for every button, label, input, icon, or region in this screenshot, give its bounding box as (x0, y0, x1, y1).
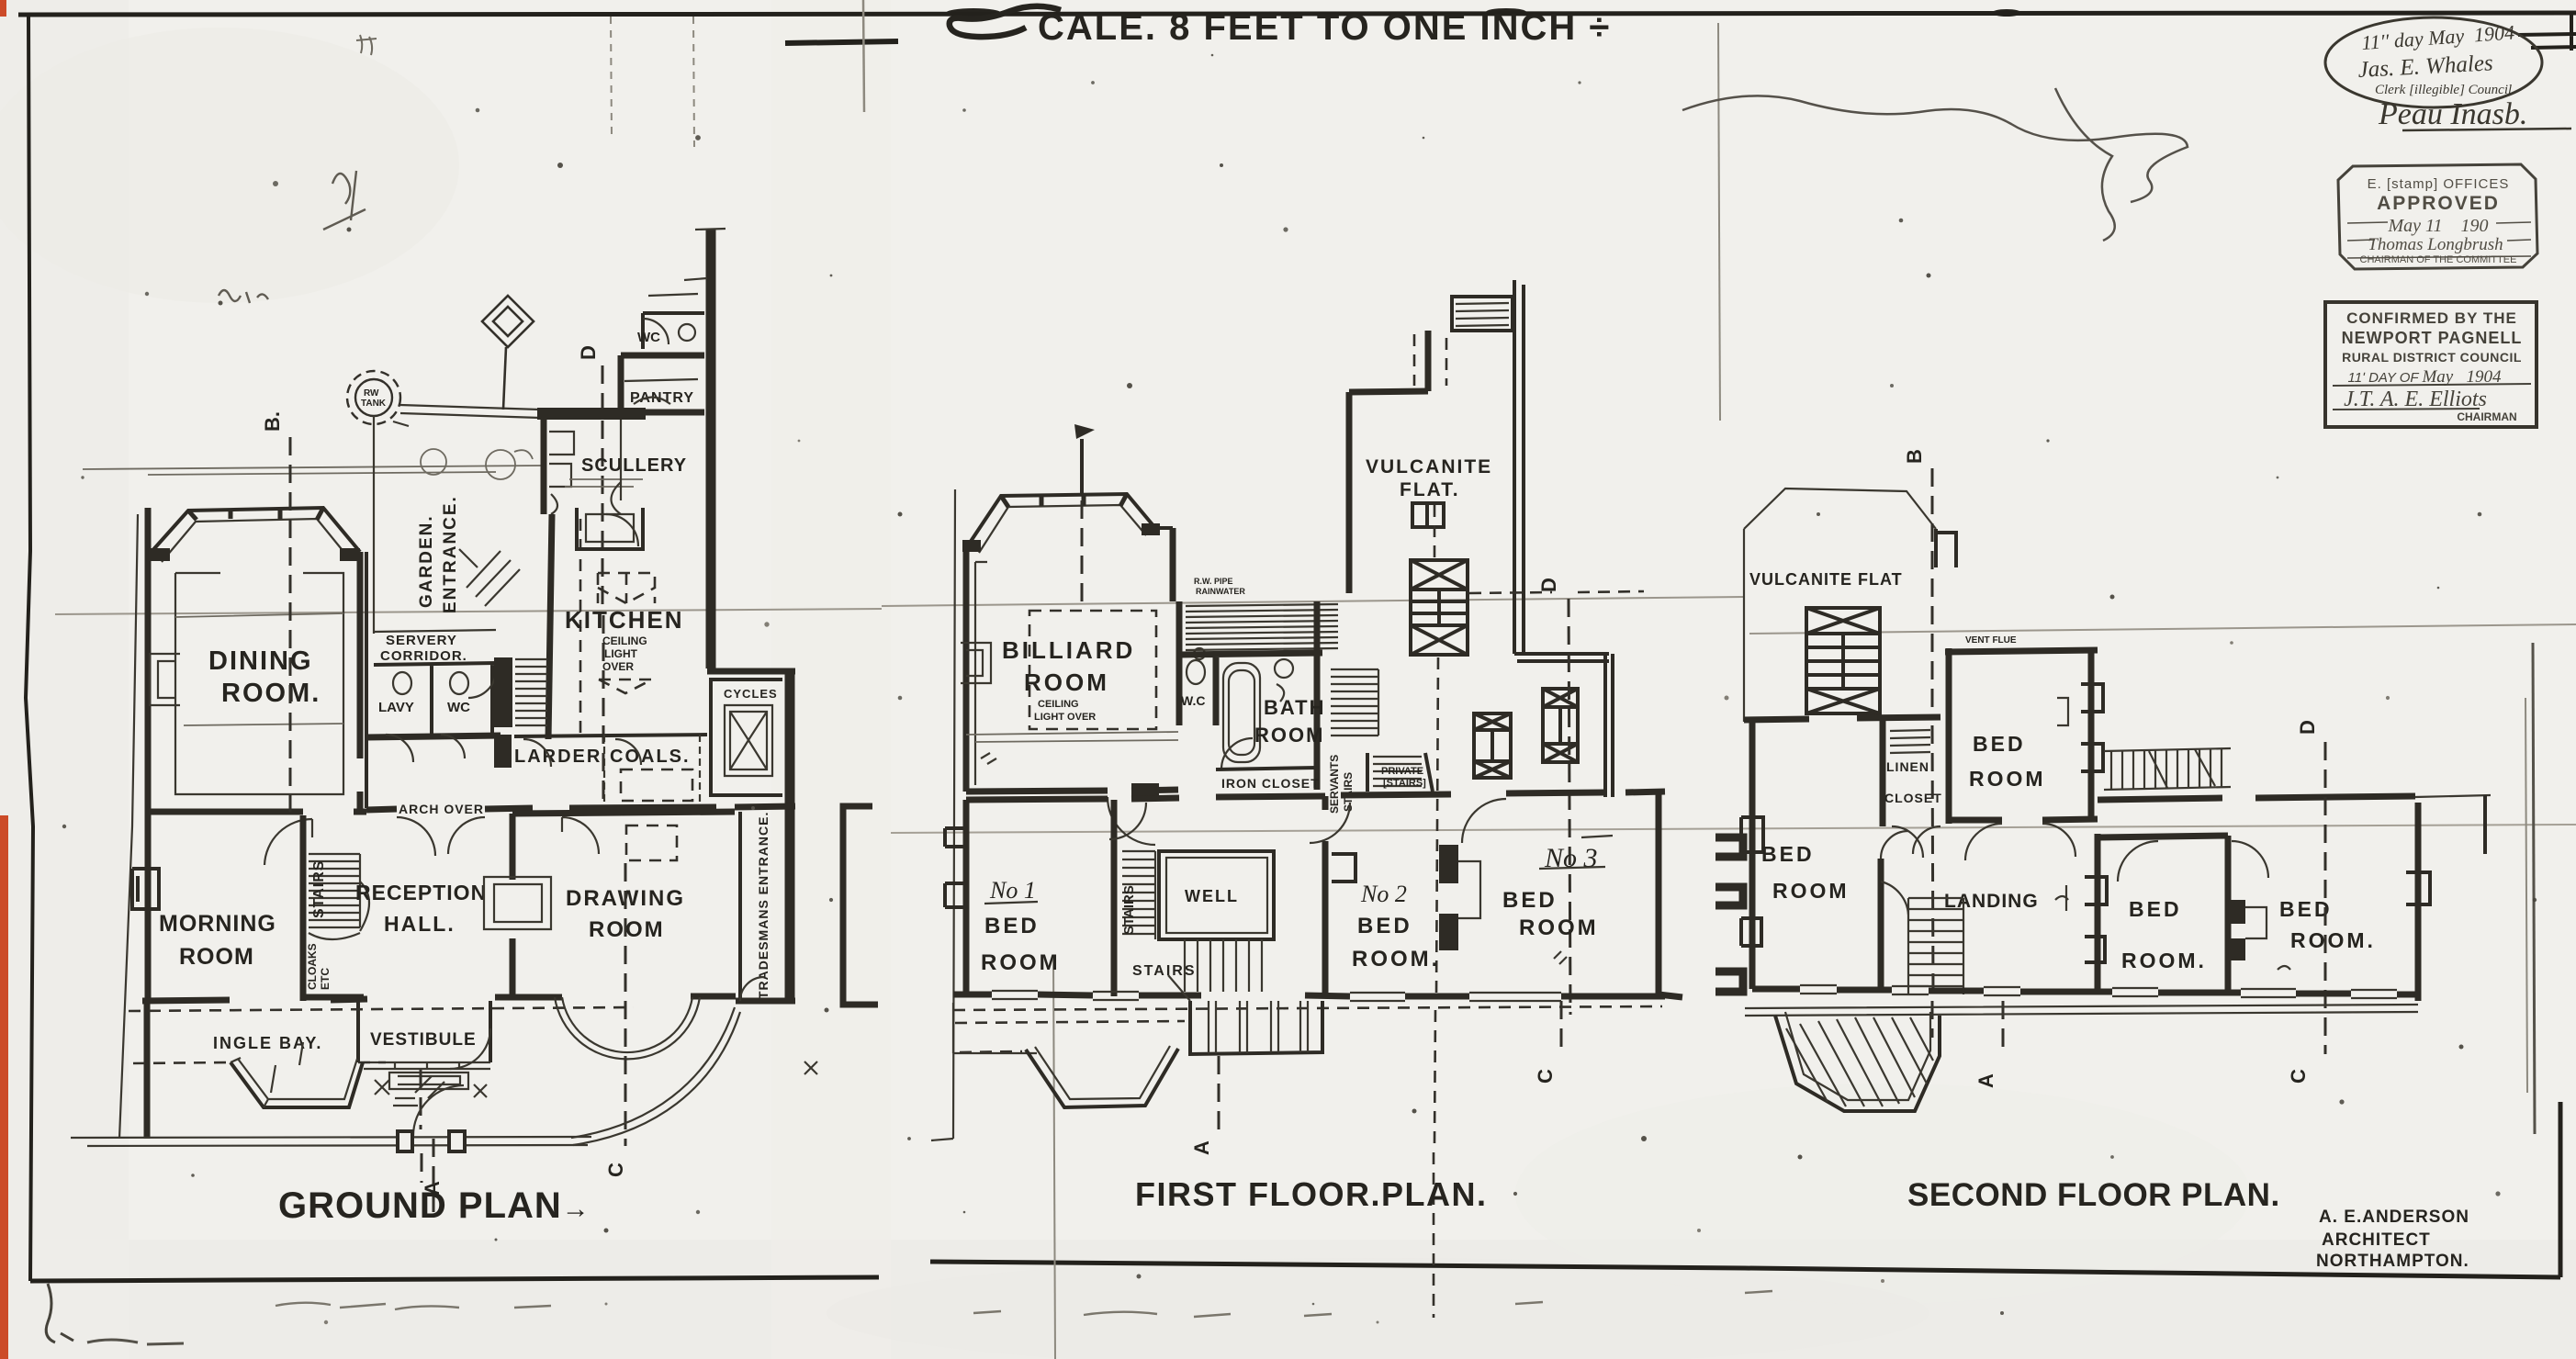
svg-text:RECEPTION: RECEPTION (355, 881, 487, 904)
svg-text:BED: BED (984, 914, 1040, 938)
svg-text:BILLIARD: BILLIARD (1002, 636, 1135, 664)
svg-text:A. E.ANDERSON: A. E.ANDERSON (2319, 1207, 2469, 1227)
svg-text:COALS.: COALS. (610, 747, 691, 767)
svg-text:PANTRY: PANTRY (630, 390, 694, 406)
svg-text:KITCHEN: KITCHEN (565, 606, 684, 634)
svg-text:LAVY: LAVY (378, 700, 414, 715)
svg-text:LIGHT OVER: LIGHT OVER (1034, 712, 1096, 723)
svg-text:ROOM.: ROOM. (2290, 928, 2376, 952)
svg-text:B.: B. (261, 411, 284, 432)
svg-text:CYCLES: CYCLES (724, 687, 778, 701)
svg-text:ROOM.: ROOM. (2121, 949, 2207, 972)
svg-text:BED: BED (1502, 888, 1558, 913)
svg-text:CLOAKS: CLOAKS (306, 943, 319, 990)
svg-text:BED: BED (1357, 914, 1412, 938)
svg-text:PRIVATE: PRIVATE (1381, 766, 1423, 777)
svg-text:Thomas Longbrush: Thomas Longbrush (2368, 235, 2503, 254)
svg-text:WC: WC (447, 700, 470, 715)
svg-text:VULCANITE: VULCANITE (1366, 456, 1492, 477)
svg-text:D: D (2296, 720, 2319, 735)
svg-text:CEILING: CEILING (602, 635, 647, 647)
svg-text:VULCANITE FLAT: VULCANITE FLAT (1749, 570, 1903, 589)
svg-text:SCULLERY: SCULLERY (581, 455, 687, 476)
svg-text:ETC: ETC (319, 968, 332, 990)
svg-text:HALL.: HALL. (384, 912, 456, 936)
svg-text:GARDEN.: GARDEN. (417, 514, 436, 608)
svg-text:DINING: DINING (208, 646, 313, 676)
svg-text:LINEN: LINEN (1886, 759, 1929, 774)
svg-text:W.C: W.C (1181, 693, 1205, 708)
svg-text:VENT FLUE: VENT FLUE (1965, 635, 2017, 646)
svg-text:OVER: OVER (602, 660, 634, 673)
svg-text:D: D (577, 345, 600, 360)
svg-text:No 1: No 1 (989, 877, 1036, 904)
svg-text:TRADESMANS ENTRANCE.: TRADESMANS ENTRANCE. (756, 812, 771, 999)
svg-text:ARCH OVER: ARCH OVER (399, 802, 484, 816)
svg-text:APPROVED: APPROVED (2377, 193, 2500, 214)
svg-text:CEILING: CEILING (1038, 699, 1079, 710)
svg-text:ROOM: ROOM (1772, 879, 1850, 903)
svg-text:LARDER: LARDER (514, 747, 602, 767)
svg-text:ENTRANCE.: ENTRANCE. (441, 495, 460, 613)
svg-text:RW: RW (364, 388, 379, 399)
svg-text:TANK: TANK (361, 399, 387, 409)
svg-text:LIGHT: LIGHT (604, 647, 638, 660)
svg-text:A: A (1190, 1140, 1213, 1155)
svg-text:RAINWATER: RAINWATER (1196, 587, 1245, 596)
svg-text:RURAL DISTRICT COUNCIL: RURAL DISTRICT COUNCIL (2342, 350, 2522, 365)
svg-text:A: A (1974, 1073, 1997, 1088)
svg-text:FIRST FLOOR.PLAN.: FIRST FLOOR.PLAN. (1135, 1175, 1487, 1213)
svg-text:STAIRS: STAIRS (311, 860, 327, 918)
svg-text:D: D (1537, 578, 1560, 592)
svg-text:GROUND PLAN→: GROUND PLAN→ (278, 1185, 591, 1226)
svg-text:No 2: No 2 (1360, 881, 1407, 907)
svg-text:WELL: WELL (1185, 887, 1239, 905)
svg-text:B: B (1903, 449, 1926, 464)
svg-text:[STAIRS]: [STAIRS] (1383, 778, 1426, 789)
svg-text:ROOM: ROOM (1969, 767, 2046, 791)
svg-text:ROOM: ROOM (1519, 915, 1599, 940)
svg-text:ARCHITECT: ARCHITECT (2322, 1230, 2431, 1250)
svg-text:CONFIRMED BY THE: CONFIRMED BY THE (2346, 309, 2517, 327)
svg-text:SERVERY: SERVERY (386, 633, 457, 648)
svg-text:R.W. PIPE: R.W. PIPE (1194, 577, 1233, 586)
svg-text:IRON CLOSET: IRON CLOSET (1221, 776, 1320, 791)
svg-text:BED: BED (1761, 842, 1815, 866)
svg-text:WC: WC (637, 330, 660, 345)
svg-text:C: C (1534, 1069, 1557, 1084)
svg-text:ROOM: ROOM (1254, 724, 1324, 747)
svg-text:CLOSET: CLOSET (1884, 791, 1942, 805)
svg-text:BED: BED (1973, 732, 2026, 756)
svg-text:NORTHAMPTON.: NORTHAMPTON. (2316, 1252, 2469, 1271)
svg-text:FLAT.: FLAT. (1400, 479, 1460, 500)
svg-text:SERVANTS: SERVANTS (1328, 755, 1341, 814)
svg-text:SECOND FLOOR PLAN.: SECOND FLOOR PLAN. (1907, 1177, 2280, 1213)
svg-text:Clerk [illegible] Council: Clerk [illegible] Council (2375, 83, 2512, 97)
svg-text:INGLE BAY.: INGLE BAY. (213, 1034, 322, 1052)
svg-text:ROOM: ROOM (981, 950, 1061, 975)
svg-text:CHAIRMAN: CHAIRMAN (2457, 410, 2516, 423)
svg-text:Peau Inasb.: Peau Inasb. (2378, 97, 2527, 131)
svg-text:CORRIDOR.: CORRIDOR. (380, 648, 467, 664)
svg-text:CALE. 8 FEET TO ONE INCH ÷: CALE. 8 FEET TO ONE INCH ÷ (1038, 7, 1611, 48)
svg-text:E. [stamp] OFFICES: E. [stamp] OFFICES (2368, 176, 2510, 192)
svg-text:ROOM.: ROOM. (1352, 947, 1440, 972)
svg-text:BATH: BATH (1264, 696, 1325, 719)
svg-text:C: C (604, 1162, 627, 1177)
svg-text:ROOM: ROOM (1024, 668, 1109, 696)
svg-text:NEWPORT PAGNELL: NEWPORT PAGNELL (2342, 329, 2523, 347)
svg-text:C: C (2287, 1069, 2310, 1084)
svg-text:BED: BED (2129, 897, 2182, 921)
svg-text:STAIRS: STAIRS (1121, 885, 1137, 935)
svg-text:STAIRS: STAIRS (1132, 963, 1196, 979)
svg-text:MORNING: MORNING (159, 911, 276, 937)
svg-text:ROOM: ROOM (179, 944, 254, 970)
svg-text:VESTIBULE: VESTIBULE (370, 1030, 477, 1050)
svg-text:May 11 190: May 11 190 (2387, 216, 2488, 236)
svg-text:ROOM.: ROOM. (221, 679, 321, 708)
